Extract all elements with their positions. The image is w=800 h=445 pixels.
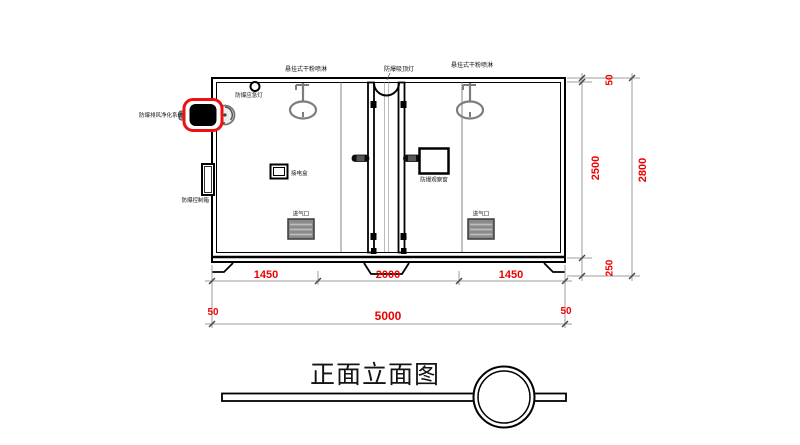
purifier-body [190,104,217,126]
elevation-drawing: 悬挂式干粉喷淋 防爆吸顶灯 悬挂式干粉喷淋 防爆应急灯 防爆排风净化系统 防爆控… [0,0,800,445]
dim-1450-right: 1450 [499,269,523,281]
junction-box [271,165,288,179]
label-air-inlet-left: 进气口 [293,210,310,218]
right-dimensions: 50 2500 250 2800 [567,73,649,281]
title-block: 正面立面图 [222,361,566,428]
control-box [202,164,214,195]
observation-window [420,149,449,174]
dim-1450-left: 1450 [254,269,278,281]
air-vent-right [468,219,494,239]
hinge-icon [371,233,377,240]
hinge-icon [401,248,407,254]
dim-roof-50: 50 [605,74,616,86]
emergency-lamp-icon [251,82,260,91]
dim-50-left: 50 [207,307,219,318]
emergency-lamp [251,82,260,91]
dim-250: 250 [605,259,616,276]
dim-2500: 2500 [590,156,602,180]
dim-2000: 2000 [376,269,400,281]
hinge-icon [371,248,377,254]
drawing-title: 正面立面图 [310,361,440,389]
foot-right [544,263,565,272]
dim-50-right: 50 [560,306,572,317]
label-emergency-lamp: 防爆应急灯 [235,91,263,99]
dim-5000: 5000 [375,309,402,323]
foot-left [212,263,233,272]
label-sprinkler-left: 悬挂式干粉喷淋 [285,65,327,73]
dim-2800: 2800 [637,158,649,182]
hinge-icon [371,101,377,108]
door-handle-left [352,155,369,162]
label-observation-window: 防爆观察窗 [420,176,448,184]
hinge-icon [401,101,407,108]
label-control-box: 防爆控制箱 [181,196,209,204]
label-air-inlet-right: 进气口 [473,210,490,218]
door-handle-right [404,155,421,162]
drawing-canvas: 悬挂式干粉喷淋 防爆吸顶灯 悬挂式干粉喷淋 防爆应急灯 防爆排风净化系统 防爆控… [0,0,800,445]
label-junction-box: 接电盒 [291,169,308,177]
bottom-dimensions: 1450 2000 1450 50 5000 50 [205,265,572,328]
label-purifier: 防爆排风净化系统 [139,111,184,119]
title-circle-symbol [474,367,535,428]
label-sprinkler-right: 悬挂式干粉喷淋 [451,61,493,69]
hinge-icon [401,233,407,240]
label-ceiling-lamp: 防爆吸顶灯 [384,65,414,73]
air-vent-left [288,219,314,239]
